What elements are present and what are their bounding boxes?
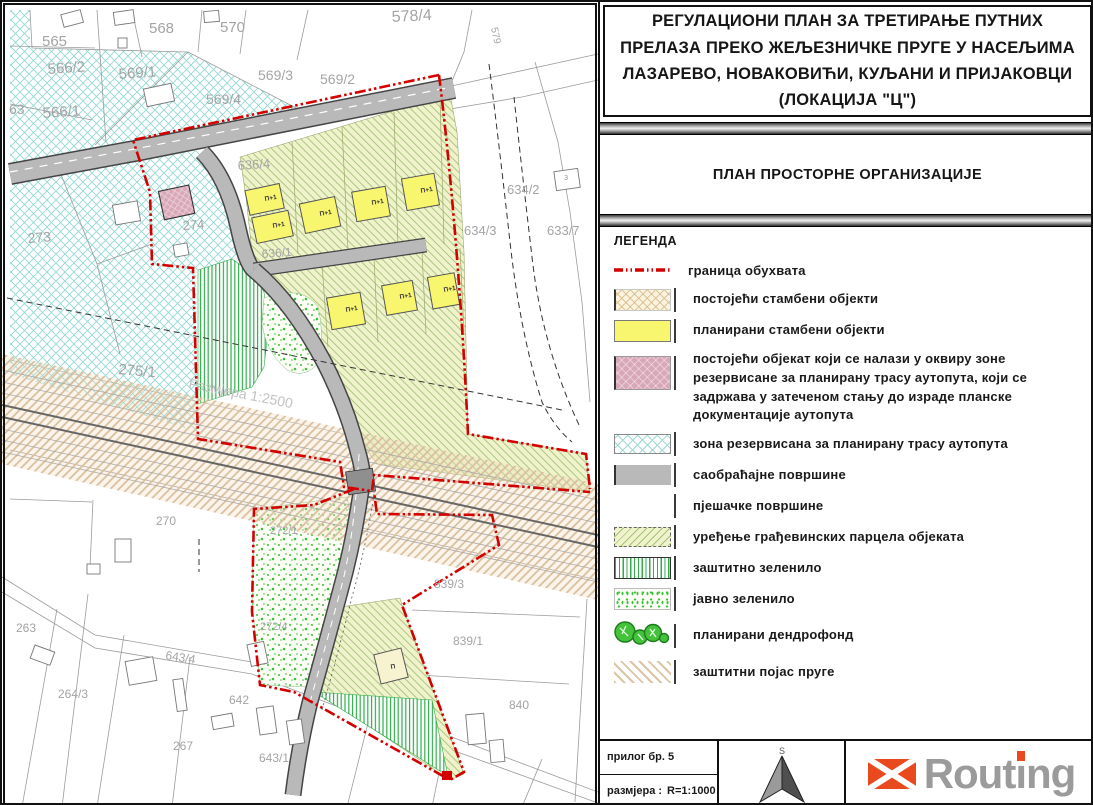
svg-text:643/4: 643/4	[165, 648, 197, 667]
routing-logo-icon	[866, 755, 918, 793]
svg-text:633/7: 633/7	[547, 223, 580, 238]
reserved-zone-swatch	[614, 434, 671, 454]
public-greenery-swatch	[614, 588, 671, 610]
scale-value: R=1:1000	[667, 785, 716, 797]
boundary-marker	[442, 771, 452, 780]
north-arrow-icon: S	[752, 744, 812, 804]
north-arrow-cell: S	[719, 741, 846, 805]
legend-item-existing-in-zone: постојећи објекат који се налази у оквир…	[614, 350, 1089, 425]
legend-item-railway-belt: заштитни појас пруге	[614, 660, 1089, 684]
svg-text:839/1: 839/1	[453, 634, 483, 648]
footer-left-cells: прилог бр. 5 размјера : R=1:1000	[600, 741, 719, 805]
routing-logo-text: Routıng	[924, 753, 1076, 795]
info-panel: РЕГУЛАЦИОНИ ПЛАН ЗА ТРЕТИРАЊЕ ПУТНИХ ПРЕ…	[598, 2, 1093, 805]
title-box: РЕГУЛАЦИОНИ ПЛАН ЗА ТРЕТИРАЊЕ ПУТНИХ ПРЕ…	[603, 5, 1092, 117]
map-canvas: 578/4565568570566/2569/1569/3569/2569/46…	[2, 2, 598, 805]
svg-text:275/1: 275/1	[118, 361, 157, 381]
sheet-subtitle: ПЛАН ПРОСТОРНЕ ОРГАНИЗАЦИЈЕ	[600, 135, 1093, 214]
svg-text:264/3: 264/3	[58, 687, 88, 701]
attachment-number: прилог бр. 5	[600, 741, 717, 775]
dendrofund-swatch	[614, 618, 671, 653]
svg-text:272/1: 272/1	[270, 525, 298, 537]
svg-text:568: 568	[149, 20, 174, 37]
legend-label: јавно зеленило	[693, 590, 795, 609]
legend-label: планирани стамбени објекти	[693, 321, 885, 340]
svg-text:566/2: 566/2	[47, 58, 86, 78]
swatch-tick	[674, 288, 676, 312]
legend-item-existing-residential: постојећи стамбени објекти	[614, 288, 1089, 312]
traffic-swatch	[614, 465, 671, 485]
legend-item-boundary: граница обухвата	[614, 262, 1089, 281]
legend-title: ЛЕГЕНДА	[614, 234, 1089, 248]
legend-item-traffic: саобраћајне површине	[614, 463, 1089, 487]
plan-title-line3: ЛАЗАРЕВО, НОВАКОВИЋИ, КУЉАНИ И ПРИЈАКОВЦ…	[623, 61, 1072, 87]
legend-item-dendrofund: планирани дендрофонд	[614, 618, 1089, 653]
protective-greenery-swatch	[614, 557, 671, 579]
svg-text:840: 840	[509, 698, 529, 712]
swatch-tick	[674, 525, 676, 549]
scale-cell: размјера : R=1:1000	[600, 775, 717, 805]
svg-text:565: 565	[42, 33, 67, 50]
legend-label: планирани дендрофонд	[693, 626, 854, 645]
legend-label: заштитно зеленило	[693, 559, 822, 578]
legend-item-protective-greenery: заштитно зеленило	[614, 556, 1089, 580]
svg-text:839/3: 839/3	[434, 577, 464, 591]
svg-text:з: з	[564, 172, 568, 182]
divider-bar	[600, 122, 1093, 135]
svg-text:274: 274	[182, 217, 205, 233]
legend-item-reserved-zone: зона резервисана за планирану трасу ауто…	[614, 432, 1089, 456]
svg-text:272/4: 272/4	[260, 621, 288, 633]
legend-label: граница обухвата	[688, 262, 806, 281]
legend-label: постојећи објекат који се налази у оквир…	[693, 350, 1089, 425]
swatch-tick	[674, 587, 676, 611]
swatch-tick	[674, 660, 676, 684]
boundary-line-swatch	[614, 262, 671, 280]
legend-item-public-greenery: јавно зеленило	[614, 587, 1089, 611]
legend-item-planned-residential: планирани стамбени објекти	[614, 319, 1089, 343]
svg-text:S: S	[778, 746, 784, 756]
svg-text:634/2: 634/2	[507, 182, 540, 197]
svg-text:569/4: 569/4	[206, 91, 241, 107]
swatch-tick	[674, 624, 676, 648]
divider-bar	[600, 214, 1093, 227]
svg-text:642: 642	[229, 693, 249, 707]
svg-text:270: 270	[156, 514, 176, 528]
planned-residential-swatch	[614, 320, 671, 342]
existing-residential-swatch	[614, 289, 671, 311]
legend-label: зона резервисана за планирану трасу ауто…	[693, 435, 1008, 454]
svg-text:578/4: 578/4	[391, 7, 432, 26]
swatch-tick	[674, 463, 676, 487]
existing-building-reserved-zone	[158, 185, 194, 220]
svg-text:273: 273	[27, 228, 52, 246]
legend-label: заштитни појас пруге	[693, 663, 835, 682]
plan-title-line2: ПРЕЛАЗА ПРЕКО ЖЕЉЕЗНИЧКЕ ПРУГЕ У НАСЕЉИМ…	[620, 35, 1075, 61]
svg-text:566/1: 566/1	[42, 102, 81, 122]
legend-label: пјешачке површине	[693, 497, 823, 516]
svg-text:263: 263	[16, 621, 36, 635]
plan-sheet: 578/4565568570566/2569/1569/3569/2569/46…	[0, 0, 1093, 805]
plan-title-line4: (ЛОКАЦИЈА "Ц")	[779, 87, 916, 113]
svg-text:569/3: 569/3	[258, 67, 293, 83]
svg-text:63: 63	[9, 101, 25, 117]
swatch-tick	[674, 556, 676, 580]
legend-label: уређење грађевинских парцела објеката	[693, 528, 964, 547]
legend-item-parcel-landscaping: уређење грађевинских парцела објеката	[614, 525, 1089, 549]
svg-text:267: 267	[173, 739, 193, 753]
svg-text:636/1: 636/1	[261, 245, 292, 261]
legend-label: постојећи стамбени објекти	[693, 290, 878, 309]
svg-text:579: 579	[488, 26, 502, 45]
legend: ЛЕГЕНДА граница обухвата постојећи стамб…	[614, 234, 1089, 734]
svg-text:634/3: 634/3	[464, 223, 497, 238]
company-logo: Routıng	[846, 741, 1093, 805]
scale-label: размјера :	[607, 785, 662, 797]
swatch-tick	[674, 432, 676, 456]
swatch-tick	[674, 494, 676, 518]
svg-text:569/2: 569/2	[320, 71, 355, 87]
railway-belt-swatch	[614, 661, 671, 683]
title-block-footer: прилог бр. 5 размјера : R=1:1000 S	[600, 739, 1093, 805]
existing-in-zone-swatch	[614, 356, 671, 390]
legend-item-pedestrian: пјешачке површине	[614, 494, 1089, 518]
legend-label: саобраћајне површине	[693, 466, 846, 485]
svg-text:569/1: 569/1	[118, 63, 157, 83]
svg-text:570: 570	[220, 19, 245, 36]
svg-text:643/1: 643/1	[259, 751, 289, 765]
svg-text:636/4: 636/4	[237, 156, 271, 173]
plan-title-line1: РЕГУЛАЦИОНИ ПЛАН ЗА ТРЕТИРАЊЕ ПУТНИХ	[652, 8, 1043, 34]
swatch-tick	[674, 319, 676, 343]
parcel-landscaping-swatch	[614, 527, 671, 547]
pedestrian-swatch	[614, 496, 671, 516]
swatch-tick	[674, 356, 676, 390]
